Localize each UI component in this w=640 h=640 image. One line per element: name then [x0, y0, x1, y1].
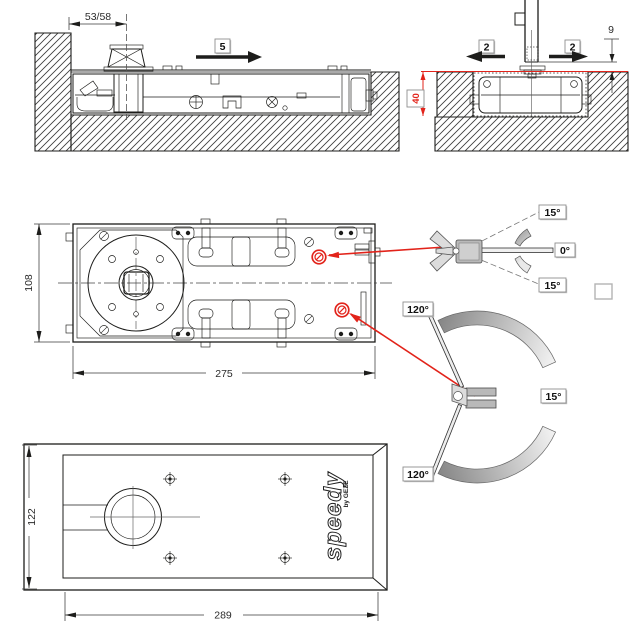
cement-box-dotted: [474, 73, 586, 116]
screw-position-markers: [163, 472, 292, 565]
svg-text:120°: 120°: [407, 469, 429, 481]
cross-screw-icon: [190, 96, 203, 109]
door-leaf: [515, 0, 545, 116]
label-15-top: 15°: [539, 205, 567, 220]
arrow-5-label: 5: [220, 41, 226, 53]
swing-arc-upper: [438, 311, 556, 368]
floor-closer-drawing: 53/58 5: [0, 0, 640, 640]
swing-diagram-closing-range: 15° 0° 15°: [430, 205, 612, 299]
dim-text-108: 108: [23, 274, 35, 292]
door-wedge-down: [515, 256, 531, 273]
front-hatch-left: [437, 72, 473, 117]
svg-text:15°: 15°: [545, 207, 561, 219]
dim-275: 275: [73, 346, 375, 380]
label-15-right: 15°: [541, 389, 567, 404]
direction-arrow-2-left: 2: [466, 40, 505, 62]
dim-text-289: 289: [214, 610, 232, 622]
dim-text-40: 40: [411, 93, 422, 104]
dim-text-9: 9: [608, 24, 614, 36]
closer-box-front: [470, 77, 591, 113]
door-wedge-up: [515, 229, 531, 246]
door-bar-zero: [481, 248, 553, 253]
spindle-cap: [104, 45, 153, 71]
fixing-pads: [172, 227, 357, 340]
empty-label-box: [595, 284, 612, 299]
dim-text-275: 275: [215, 368, 233, 380]
spindle-hub-top: [430, 231, 482, 271]
closer-box-section: [71, 66, 377, 113]
valve-callout-upper: [312, 247, 445, 264]
section-front-view: 2 2 9 40: [407, 0, 628, 151]
dim-text-122: 122: [26, 508, 38, 526]
label-120-bottom: 120°: [403, 467, 434, 482]
section-side-view: 53/58 5: [35, 11, 399, 151]
label-15-bottom: 15°: [539, 278, 567, 293]
swing-arc-lower: [438, 426, 556, 483]
spindle-block: [114, 74, 143, 112]
slotted-screw-icon: [267, 97, 278, 108]
dim-53-58: 53/58: [69, 11, 127, 30]
dim-289: 289: [65, 592, 378, 622]
spindle-opening: [63, 486, 200, 549]
brand-logo-subtext: by GEZE: [343, 480, 350, 508]
swing-diagram-opening-range: 120° 120° 15°: [403, 302, 567, 483]
u-clip: [223, 96, 241, 108]
arrow-2-left-label: 2: [484, 42, 490, 54]
technical-drawing-page: 53/58 5: [0, 0, 640, 640]
cover-plate-view: speedy by GEZE 122 289: [22, 444, 387, 622]
tilted-valve: [80, 81, 98, 96]
dim-text-53-58: 53/58: [85, 11, 111, 23]
svg-text:120°: 120°: [407, 304, 429, 316]
svg-text:15°: 15°: [545, 280, 561, 292]
wall-hatch: [35, 33, 71, 151]
label-0: 0°: [555, 243, 576, 258]
svg-text:0°: 0°: [560, 245, 570, 257]
direction-arrow-5: 5: [196, 39, 262, 63]
brand-logo: speedy by GEZE: [320, 471, 350, 560]
svg-text:15°: 15°: [546, 391, 562, 403]
direction-arrow-2-right: 2: [549, 40, 588, 62]
label-120-top: 120°: [403, 302, 434, 317]
